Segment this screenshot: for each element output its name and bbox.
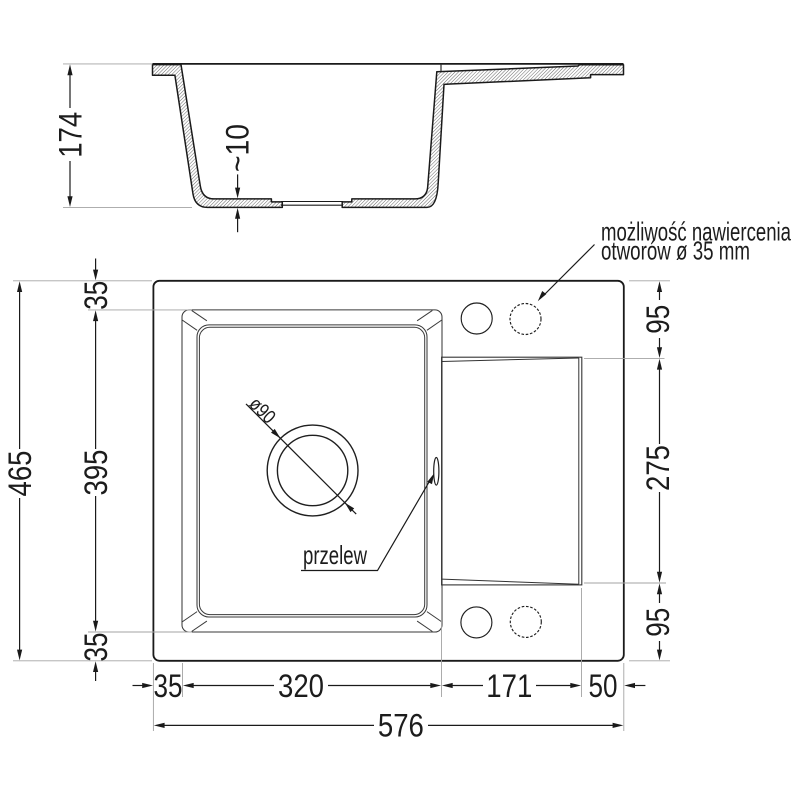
- svg-text:174: 174: [52, 112, 88, 158]
- svg-text:95: 95: [640, 608, 676, 637]
- svg-text:576: 576: [378, 708, 424, 744]
- svg-text:~10: ~10: [220, 124, 256, 172]
- svg-text:465: 465: [2, 451, 38, 497]
- svg-text:171: 171: [486, 668, 532, 704]
- svg-text:ø90: ø90: [244, 393, 279, 428]
- svg-text:35: 35: [78, 281, 114, 310]
- svg-text:otworów ø 35 mm: otworów ø 35 mm: [601, 236, 750, 266]
- svg-text:35: 35: [78, 633, 114, 662]
- svg-text:przelew: przelew: [303, 540, 367, 570]
- svg-text:395: 395: [78, 450, 114, 496]
- svg-text:320: 320: [278, 668, 324, 704]
- svg-text:35: 35: [154, 668, 183, 704]
- svg-text:275: 275: [640, 445, 676, 491]
- svg-text:50: 50: [589, 668, 618, 704]
- svg-text:95: 95: [640, 305, 676, 334]
